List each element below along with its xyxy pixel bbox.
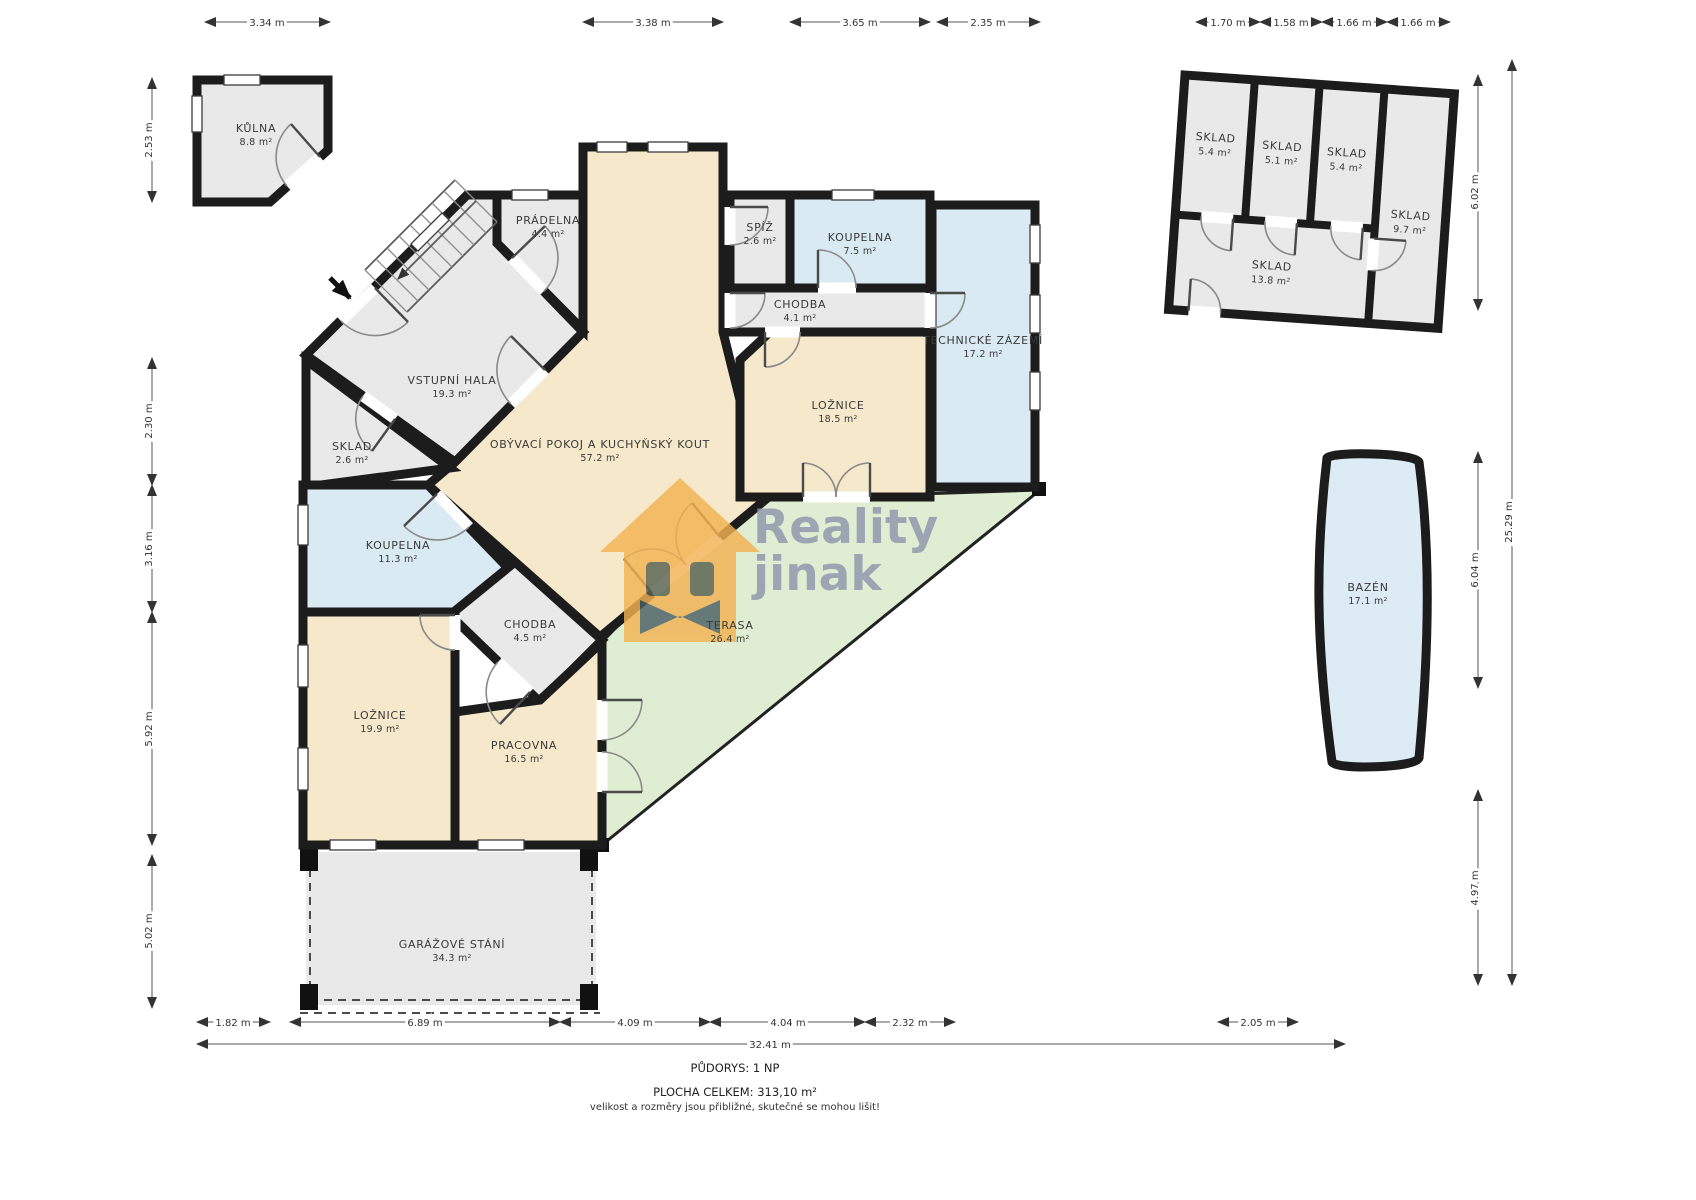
room-label: OBÝVACÍ POKOJ A KUCHYŇSKÝ KOUT (490, 438, 710, 451)
watermark-eye-icon (690, 562, 714, 596)
dim-label: 3.16 m (144, 531, 155, 566)
room-label: TERASA (705, 619, 753, 632)
room-garaz (306, 852, 596, 1005)
dim-label: 1.66 m (1336, 18, 1371, 29)
room-area: 5.1 m² (1264, 155, 1298, 168)
window (298, 505, 308, 545)
room-area: 7.5 m² (844, 246, 877, 257)
window (648, 142, 688, 152)
dim-label: 4.09 m (617, 1018, 652, 1029)
dim-label: 3.34 m (249, 18, 284, 29)
room-area: 4.4 m² (532, 229, 565, 240)
room-label: KŮLNA (236, 122, 276, 135)
dim-label: 6.89 m (407, 1018, 442, 1029)
room-area: 17.2 m² (963, 349, 1002, 360)
room-label: SPÍŽ (746, 221, 773, 234)
room-area: 4.1 m² (784, 313, 817, 324)
room-label: PRACOVNA (491, 739, 557, 752)
dimensions-left: 2.53 m 2.30 m 3.16 m 5.92 m 5.02 m (144, 78, 155, 1008)
dim-label: 2.35 m (970, 18, 1005, 29)
room-area: 19.3 m² (432, 389, 471, 400)
window (1030, 372, 1040, 410)
footer: PŮDORYS: 1 NP PLOCHA CELKEM: 313,10 m² v… (590, 1060, 880, 1113)
dim-label: 3.38 m (635, 18, 670, 29)
room-area: 17.1 m² (1348, 596, 1387, 607)
room-area: 2.6 m² (336, 455, 369, 466)
floorplan-drawing: SKLAD 5.4 m² SKLAD 5.1 m² SKLAD 5.4 m² S… (0, 0, 1696, 1200)
dim-label: 4.97 m (1470, 870, 1481, 905)
window (1030, 225, 1040, 263)
dim-label: 5.92 m (144, 711, 155, 746)
window (597, 142, 627, 152)
dim-label: 32.41 m (749, 1040, 791, 1051)
room-area: 26.4 m² (710, 634, 749, 645)
dim-label: 4.04 m (770, 1018, 805, 1029)
floorplan-page: SKLAD 5.4 m² SKLAD 5.1 m² SKLAD 5.4 m² S… (0, 0, 1696, 1200)
room-area: 2.6 m² (744, 236, 777, 247)
watermark-word2: jinak (751, 547, 883, 602)
window (832, 190, 874, 200)
room-label: TECHNICKÉ ZÁZEMÍ (922, 334, 1043, 347)
room-label: CHODBA (774, 298, 826, 311)
room-label: KOUPELNA (366, 539, 430, 552)
dim-label: 6.04 m (1470, 552, 1481, 587)
window (330, 840, 376, 850)
footer-plan-title: PŮDORYS: 1 NP (691, 1060, 780, 1075)
window (192, 96, 202, 132)
window (298, 645, 308, 687)
footer-disclaimer: velikost a rozměry jsou přibližné, skute… (590, 1101, 880, 1113)
window (1030, 295, 1040, 333)
dim-label: 1.66 m (1400, 18, 1435, 29)
room-label: LOŽNICE (354, 709, 407, 722)
room-label: VSTUPNÍ HALA (408, 374, 497, 387)
storage-building: SKLAD 5.4 m² SKLAD 5.1 m² SKLAD 5.4 m² S… (1169, 75, 1455, 328)
room-label: PRÁDELNA (516, 214, 580, 227)
room-area: 5.4 m² (1198, 146, 1232, 159)
dim-label: 25.29 m (1504, 501, 1515, 543)
room-label: SKLAD (332, 440, 372, 453)
room-area: 4.5 m² (514, 633, 547, 644)
room-area: 11.3 m² (378, 554, 417, 565)
dim-label: 1.58 m (1273, 18, 1308, 29)
room-label: CHODBA (504, 618, 556, 631)
window (298, 748, 308, 790)
dim-label: 2.32 m (892, 1018, 927, 1029)
room-area: 9.7 m² (1393, 224, 1427, 237)
room-label: LOŽNICE (812, 399, 865, 412)
dim-label: 2.53 m (144, 122, 155, 157)
room-area: 18.5 m² (818, 414, 857, 425)
room-label: BAZÉN (1347, 581, 1388, 594)
dimensions-bottom: 1.82 m 6.89 m 4.09 m 4.04 m 2.32 m 2.05 … (197, 1018, 1345, 1051)
room-area: 16.5 m² (504, 754, 543, 765)
window (478, 840, 524, 850)
dimensions-top: 3.34 m 3.38 m 3.65 m 2.35 m 1.70 m 1.58 … (205, 18, 1450, 29)
dim-label: 1.82 m (215, 1018, 250, 1029)
room-label: KOUPELNA (828, 231, 892, 244)
room-bazen (1319, 454, 1427, 767)
room-label: GARÁŽOVÉ STÁNÍ (399, 938, 505, 951)
dim-label: 2.30 m (144, 403, 155, 438)
footer-total-area: PLOCHA CELKEM: 313,10 m² (653, 1085, 817, 1099)
watermark-eye-icon (646, 562, 670, 596)
room-area: 5.4 m² (1329, 161, 1363, 174)
dimensions-right: 6.02 m 6.04 m 4.97 m 25.29 m (1470, 60, 1515, 985)
entry-arrow-icon (330, 278, 350, 298)
room-area: 34.3 m² (432, 953, 471, 964)
garage (300, 845, 600, 1013)
dim-label: 3.65 m (842, 18, 877, 29)
window (224, 75, 260, 85)
dim-label: 6.02 m (1470, 174, 1481, 209)
dim-label: 5.02 m (144, 913, 155, 948)
room-area: 8.8 m² (240, 137, 273, 148)
dim-label: 1.70 m (1210, 18, 1245, 29)
dim-label: 2.05 m (1240, 1018, 1275, 1029)
window (512, 190, 548, 200)
room-area: 19.9 m² (360, 724, 399, 735)
room-area: 57.2 m² (580, 453, 619, 464)
